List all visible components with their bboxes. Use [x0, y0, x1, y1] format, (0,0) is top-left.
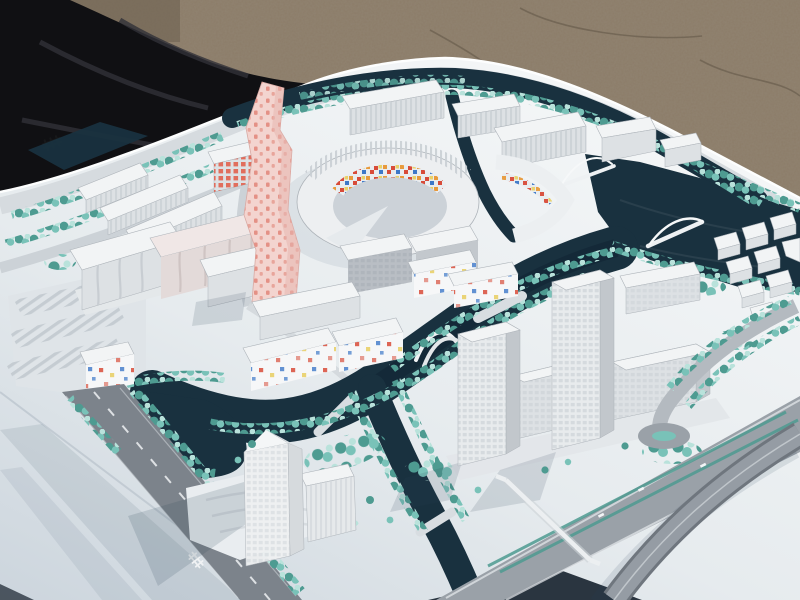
- podium: [300, 464, 356, 542]
- junction-green: [652, 431, 676, 441]
- south-tower: [244, 430, 304, 566]
- tower-west: [458, 322, 520, 466]
- model-photograph: [0, 0, 800, 600]
- tower-east: [552, 270, 614, 450]
- scene-canvas: [0, 0, 800, 600]
